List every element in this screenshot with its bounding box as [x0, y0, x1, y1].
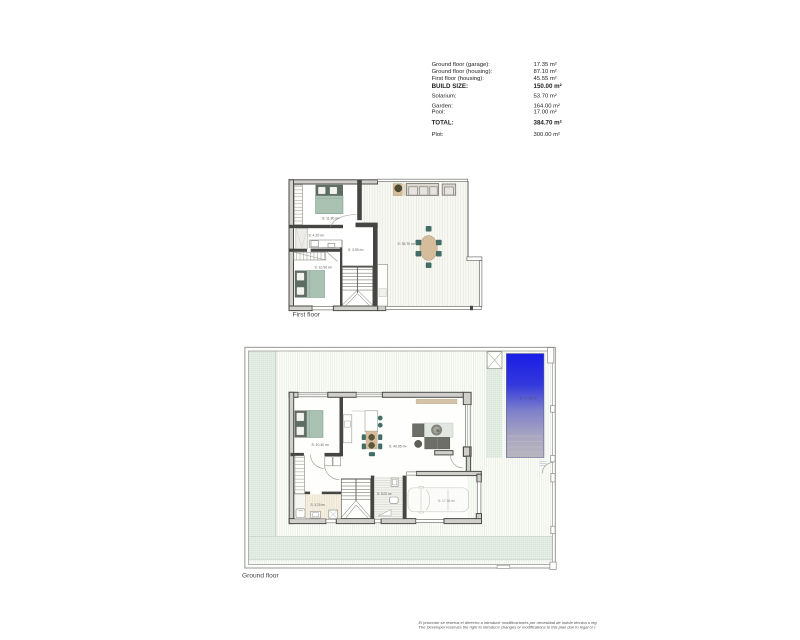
svg-text:17.35 m²: 17.35 m²	[534, 62, 557, 68]
svg-text:384.70 m²: 384.70 m²	[534, 120, 562, 127]
svg-text:S: 3.90 m²: S: 3.90 m²	[348, 248, 365, 252]
svg-text:The Developer reserves the rig: The Developer reserves the right to intr…	[419, 625, 597, 630]
svg-text:Ground floor (housing):: Ground floor (housing):	[432, 69, 493, 75]
svg-text:Ground floor (garage):: Ground floor (garage):	[432, 62, 491, 68]
svg-text:BUILD SIZE:: BUILD SIZE:	[432, 83, 468, 90]
svg-text:S: 10.40 m²: S: 10.40 m²	[312, 443, 330, 447]
svg-text:S: 17.35 m²: S: 17.35 m²	[438, 499, 456, 503]
svg-text:S: 35.70 m²: S: 35.70 m²	[398, 242, 416, 246]
svg-text:17.00 m²: 17.00 m²	[534, 110, 557, 116]
svg-text:Plot:: Plot:	[432, 132, 444, 138]
svg-text:S: 11.80 m²: S: 11.80 m²	[322, 217, 340, 221]
svg-text:150.00 m²: 150.00 m²	[534, 83, 562, 90]
svg-text:S: 5.00 m²: S: 5.00 m²	[377, 492, 392, 496]
svg-text:Ground floor: Ground floor	[242, 573, 279, 580]
svg-text:Solarium:: Solarium:	[432, 94, 457, 100]
svg-text:300.00 m²: 300.00 m²	[534, 132, 561, 138]
svg-text:S: 3.20 m²: S: 3.20 m²	[311, 503, 326, 507]
svg-text:45.55 m²: 45.55 m²	[534, 76, 557, 82]
svg-text:S: 40.95 m²: S: 40.95 m²	[389, 444, 407, 448]
svg-text:53.70 m²: 53.70 m²	[534, 94, 557, 100]
svg-text:First floor: First floor	[293, 312, 321, 319]
svg-text:Pool:: Pool:	[432, 110, 446, 116]
svg-text:87.10 m²: 87.10 m²	[534, 69, 557, 75]
svg-text:First floor (housing):: First floor (housing):	[432, 76, 485, 82]
svg-text:TOTAL:: TOTAL:	[432, 120, 454, 127]
svg-text:S: 4.20 m²: S: 4.20 m²	[309, 234, 326, 238]
svg-text:S: 17.00 m²: S: 17.00 m²	[520, 397, 538, 401]
svg-text:S: 10.90 m²: S: 10.90 m²	[315, 265, 333, 269]
